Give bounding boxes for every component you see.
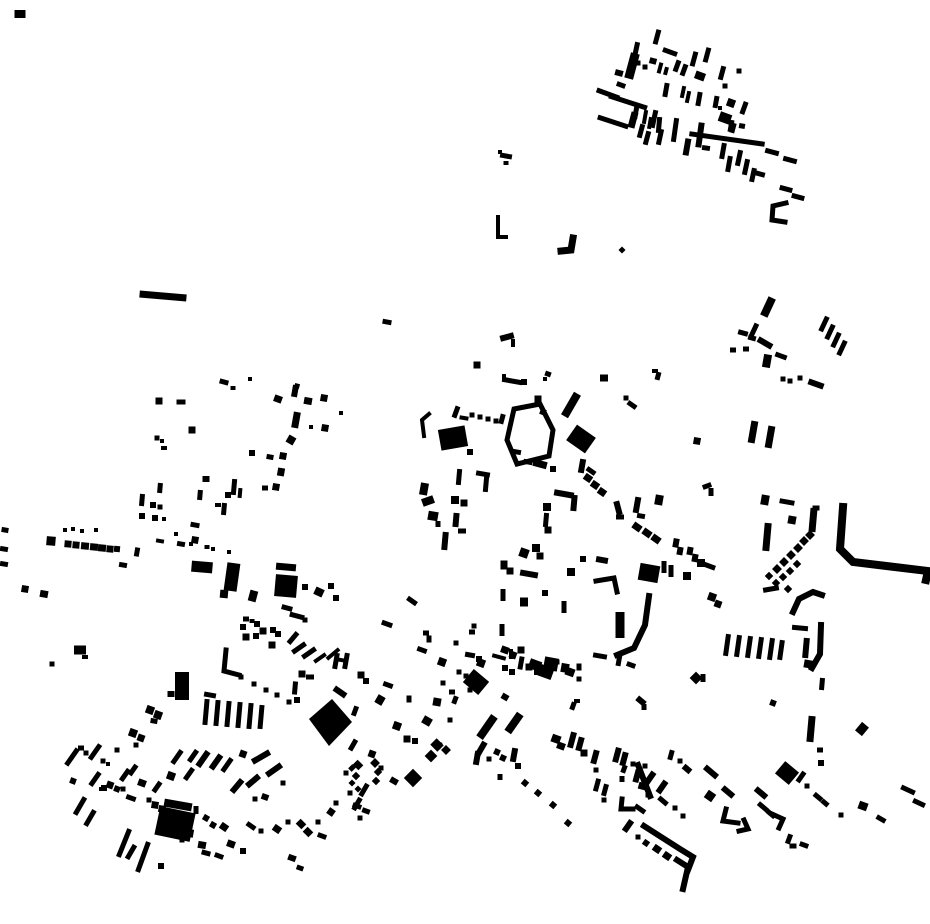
building-footprint <box>502 374 506 380</box>
building-footprint <box>671 118 679 142</box>
building-footprint <box>637 513 646 519</box>
building-footprint <box>277 467 285 476</box>
building-footprint <box>748 421 759 444</box>
building-footprint <box>189 427 196 434</box>
building-footprint <box>616 81 626 89</box>
building-footprint <box>683 572 691 580</box>
building-footprint <box>292 681 298 694</box>
building-footprint <box>184 828 194 837</box>
building-footprint <box>709 488 714 496</box>
building-footprint <box>626 400 637 410</box>
building-footprint <box>657 62 664 74</box>
building-footprint <box>545 527 552 534</box>
building-footprint <box>498 414 505 425</box>
building-footprint <box>427 511 438 522</box>
building-footprint <box>451 695 458 704</box>
building-footprint <box>656 780 669 795</box>
building-footprint <box>779 573 787 581</box>
building-footprint <box>590 749 599 764</box>
building-footprint <box>642 839 650 847</box>
building-footprint <box>721 785 736 799</box>
building-footprint <box>98 544 107 552</box>
building-footprint <box>494 419 499 424</box>
building-footprint <box>448 718 453 723</box>
building-footprint <box>265 762 283 777</box>
building-footprint <box>499 754 507 762</box>
building-footprint <box>106 545 114 553</box>
building-footprint <box>616 515 624 520</box>
building-footprint <box>702 145 711 151</box>
building-footprint <box>251 749 271 764</box>
building-footprint <box>150 718 158 724</box>
building-footprint <box>518 647 525 654</box>
building-footprint <box>577 664 582 671</box>
building-footprint <box>509 649 513 659</box>
building-footprint <box>636 61 641 66</box>
building-footprint <box>392 721 402 731</box>
building-footprint <box>275 693 280 698</box>
building-footprint <box>301 646 317 659</box>
building-footprint <box>351 705 359 716</box>
building-footprint <box>321 424 329 432</box>
building-footprint <box>633 497 642 514</box>
building-footprint <box>125 844 137 860</box>
building-footprint <box>762 523 771 552</box>
building-footprint <box>333 686 348 699</box>
building-footprint <box>654 494 664 505</box>
building-footprint <box>543 503 551 511</box>
building-footprint <box>486 417 491 422</box>
building-footprint <box>500 693 509 702</box>
building-footprint <box>121 787 126 792</box>
building-footprint <box>562 601 567 613</box>
building-footprint <box>246 703 253 729</box>
building-footprint <box>115 748 120 753</box>
building-footprint <box>219 822 230 832</box>
building-footprint <box>421 495 435 507</box>
building-footprint <box>266 454 274 460</box>
building-footprint <box>454 641 459 646</box>
building-footprint <box>501 561 508 570</box>
building-footprint <box>686 547 693 556</box>
building-footprint <box>593 778 601 792</box>
building-footprint <box>793 560 801 568</box>
building-footprint <box>316 820 321 825</box>
building-footprint <box>857 801 868 812</box>
building-footprint <box>532 544 540 552</box>
building-footprint <box>757 336 774 349</box>
building-footprint <box>783 156 798 164</box>
figure-ground-map <box>0 0 930 924</box>
building-footprint <box>15 10 26 18</box>
building-footprint <box>205 545 210 549</box>
building-footprint <box>72 541 80 549</box>
building-footprint <box>694 71 706 82</box>
building-footprint <box>438 425 468 450</box>
building-footprint <box>643 131 651 146</box>
building-footprint <box>830 332 841 349</box>
building-footprint <box>320 394 328 402</box>
building-footprint <box>642 110 648 124</box>
building-footprint <box>777 640 785 661</box>
building-footprint <box>382 319 392 325</box>
building-footprint <box>498 150 502 154</box>
building-footprint <box>240 848 246 854</box>
building-footprint <box>912 798 926 808</box>
courtyard-block-outline <box>507 404 553 464</box>
building-footprint <box>791 193 805 201</box>
building-footprint <box>423 631 429 636</box>
building-footprint <box>139 290 186 301</box>
building-footprint <box>262 486 268 491</box>
building-footprint <box>152 781 163 794</box>
building-footprint <box>291 412 301 429</box>
building-footprint <box>317 832 327 840</box>
building-footprint <box>296 819 307 830</box>
building-footprint <box>449 690 455 695</box>
building-footprint <box>787 515 796 524</box>
building-footprint <box>158 505 163 510</box>
building-footprint <box>818 760 824 766</box>
building-footprint <box>805 784 810 789</box>
building-footprint <box>137 778 147 787</box>
building-footprint <box>472 624 477 629</box>
building-footprint <box>287 854 297 862</box>
l-shaped-building <box>498 217 506 237</box>
building-footprint <box>458 529 466 534</box>
building-footprint <box>183 767 195 781</box>
building-footprint <box>83 809 96 827</box>
building-footprint <box>106 762 110 766</box>
building-footprint <box>839 813 844 818</box>
building-footprint <box>521 779 529 787</box>
building-footprint <box>742 159 750 176</box>
building-footprint <box>504 712 523 735</box>
building-footprint <box>88 771 101 787</box>
building-footprint <box>634 804 647 815</box>
building-footprint <box>765 572 773 580</box>
building-footprint <box>81 542 90 550</box>
building-footprint <box>348 791 353 796</box>
building-footprint <box>197 490 203 500</box>
building-footprint <box>224 701 231 727</box>
building-footprint <box>39 590 48 598</box>
building-footprint <box>101 759 106 764</box>
building-footprint <box>21 585 29 593</box>
building-footprint <box>137 734 146 743</box>
building-footprint <box>719 143 727 160</box>
building-footprint <box>425 750 438 763</box>
building-footprint <box>652 369 658 373</box>
building-footprint <box>515 763 521 769</box>
building-footprint <box>46 536 56 546</box>
building-footprint <box>0 546 8 552</box>
building-footprint <box>685 91 691 104</box>
building-footprint <box>555 660 560 665</box>
long-bracket-structure <box>840 507 928 580</box>
building-footprint <box>382 681 393 689</box>
building-footprint <box>177 541 186 547</box>
building-footprint <box>613 500 622 515</box>
building-footprint <box>802 638 810 658</box>
building-footprint <box>432 697 441 706</box>
building-footprint <box>730 348 736 353</box>
building-footprint <box>498 774 503 780</box>
building-footprint <box>594 768 599 773</box>
building-footprint <box>243 634 250 641</box>
building-footprint <box>622 819 634 833</box>
building-footprint <box>798 376 803 381</box>
building-footprint <box>463 669 489 695</box>
building-footprint <box>287 700 292 705</box>
building-footprint <box>227 550 231 554</box>
building-footprint <box>616 612 625 638</box>
building-footprint <box>50 662 55 667</box>
building-footprint <box>476 714 497 740</box>
building-footprint <box>225 492 231 498</box>
building-footprint <box>456 469 462 485</box>
building-footprint <box>213 700 220 726</box>
building-footprint <box>361 807 370 814</box>
building-footprint <box>412 738 418 744</box>
building-footprint <box>537 553 544 560</box>
building-footprint <box>221 503 227 515</box>
building-footprint <box>662 47 678 57</box>
building-footprint <box>662 561 667 573</box>
building-footprint <box>259 829 264 834</box>
building-footprint <box>636 835 641 840</box>
building-footprint <box>566 425 596 454</box>
building-footprint <box>406 596 418 606</box>
building-footprint <box>543 377 547 381</box>
building-footprint <box>779 557 789 567</box>
building-footprint <box>511 339 515 347</box>
building-footprint <box>248 590 259 603</box>
building-footprint <box>755 170 766 177</box>
building-footprint <box>672 538 679 548</box>
building-footprint <box>194 806 199 814</box>
building-footprint <box>643 764 648 769</box>
building-footprint <box>452 406 461 419</box>
building-footprint <box>202 699 209 725</box>
building-footprint <box>673 60 682 73</box>
building-footprint <box>492 653 507 660</box>
building-footprint <box>302 584 308 590</box>
building-footprint <box>269 642 276 649</box>
building-footprint <box>1 527 9 533</box>
building-footprint <box>662 83 669 98</box>
building-footprint <box>680 86 686 99</box>
building-footprint <box>94 528 98 532</box>
bent-tall-building <box>812 625 821 668</box>
building-footprint <box>520 569 539 578</box>
building-footprint <box>147 798 152 803</box>
building-footprint <box>191 561 213 574</box>
building-footprint <box>681 814 686 819</box>
building-footprint <box>534 789 542 797</box>
building-footprint <box>162 517 166 521</box>
building-footprint <box>567 731 577 748</box>
building-footprint <box>564 819 572 827</box>
building-footprint <box>718 66 726 81</box>
building-footprint <box>214 852 224 860</box>
building-footprint <box>170 749 183 765</box>
building-footprint <box>763 585 780 593</box>
building-footprint <box>799 841 809 849</box>
building-footprint <box>501 589 506 601</box>
building-footprint <box>119 768 131 782</box>
building-footprint <box>749 323 759 338</box>
bracket-building <box>422 414 429 436</box>
elbow-building <box>677 860 688 889</box>
building-footprint <box>620 776 625 782</box>
corner-building <box>596 578 617 592</box>
building-footprint <box>608 93 648 110</box>
building-footprint <box>197 841 206 849</box>
building-footprint <box>784 585 792 593</box>
building-footprint <box>567 568 575 576</box>
building-footprint <box>230 778 245 794</box>
building-footprint <box>84 751 89 756</box>
building-footprint <box>772 564 782 574</box>
building-footprint <box>601 784 609 797</box>
building-footprint <box>577 677 582 682</box>
building-footprint <box>765 148 780 156</box>
building-footprint <box>662 851 673 861</box>
building-footprint <box>618 246 625 253</box>
building-footprint <box>900 785 916 796</box>
building-footprint <box>734 635 742 657</box>
building-footprint <box>612 747 622 763</box>
building-footprint <box>469 630 475 635</box>
building-footprint <box>596 556 609 564</box>
building-footprint <box>215 503 221 507</box>
building-footprint <box>575 736 584 751</box>
large-solid-block <box>309 699 352 746</box>
building-footprint <box>139 494 145 506</box>
building-footprint <box>836 340 847 357</box>
building-footprint <box>792 625 808 631</box>
building-footprint <box>697 559 705 567</box>
building-footprint <box>669 565 674 577</box>
building-footprint <box>682 764 693 774</box>
building-footprint <box>291 641 307 654</box>
building-footprint <box>437 657 447 667</box>
building-footprint <box>799 536 809 546</box>
building-footprint <box>160 439 164 443</box>
building-footprint <box>231 479 237 495</box>
building-footprint <box>419 482 429 495</box>
building-footprint <box>704 790 717 803</box>
building-footprint <box>113 785 121 793</box>
building-footprint <box>326 807 336 817</box>
building-footprint <box>281 781 286 786</box>
building-footprint <box>352 772 360 780</box>
building-footprint <box>760 494 770 505</box>
building-footprint <box>543 513 549 527</box>
building-footprint <box>180 838 185 843</box>
building-footprint <box>739 101 748 115</box>
building-footprint <box>187 749 199 763</box>
map-canvas <box>0 0 930 924</box>
building-footprint <box>238 488 243 498</box>
building-footprint <box>641 528 652 539</box>
building-footprint <box>249 450 255 456</box>
building-footprint <box>261 793 270 801</box>
building-footprint <box>235 702 242 728</box>
building-footprint <box>441 532 449 550</box>
building-footprint <box>518 547 530 559</box>
building-footprint <box>678 759 683 764</box>
building-footprint <box>260 628 267 635</box>
building-footprint <box>296 864 304 871</box>
building-footprint <box>788 379 793 384</box>
building-footprint <box>690 672 703 685</box>
building-footprint <box>253 797 258 802</box>
building-footprint <box>119 562 128 568</box>
building-footprint <box>637 124 645 139</box>
building-footprint <box>597 115 629 130</box>
building-footprint <box>544 371 551 378</box>
building-footprint <box>509 669 515 675</box>
building-footprint <box>303 827 314 838</box>
building-footprint <box>168 691 175 697</box>
building-footprint <box>775 352 788 361</box>
building-footprint <box>281 604 293 612</box>
building-footprint <box>542 590 548 596</box>
building-footprint <box>786 567 794 575</box>
building-footprint <box>649 57 657 65</box>
building-footprint <box>808 508 817 533</box>
building-footprint <box>63 528 67 532</box>
building-footprint <box>451 496 459 504</box>
building-footprint <box>714 600 723 609</box>
building-footprint <box>286 435 297 446</box>
building-footprint <box>653 29 662 45</box>
building-footprint <box>276 563 297 572</box>
building-footprint <box>358 816 363 821</box>
building-footprint <box>224 562 241 592</box>
building-footprint <box>389 776 399 785</box>
building-footprint <box>765 426 776 449</box>
building-footprint <box>638 563 661 583</box>
building-footprint <box>156 398 163 405</box>
building-footprint <box>760 296 776 318</box>
building-footprint <box>626 661 636 669</box>
building-footprint <box>313 586 325 597</box>
building-footprint <box>642 704 647 710</box>
building-footprint <box>695 92 702 107</box>
building-footprint <box>416 646 427 654</box>
building-footprint <box>631 522 642 533</box>
building-footprint <box>275 631 281 637</box>
building-footprint <box>819 678 825 690</box>
building-footprint <box>459 415 469 421</box>
building-footprint <box>363 678 369 684</box>
building-footprint <box>624 396 629 401</box>
building-footprint <box>101 785 107 791</box>
building-footprint <box>209 753 224 770</box>
building-footprint <box>779 498 795 506</box>
building-footprint <box>683 138 692 156</box>
building-footprint <box>286 820 291 825</box>
building-footprint <box>452 513 459 527</box>
building-footprint <box>303 618 308 623</box>
building-footprint <box>590 480 601 490</box>
building-footprint <box>134 547 140 557</box>
building-footprint <box>813 506 820 511</box>
building-footprint <box>209 821 217 829</box>
